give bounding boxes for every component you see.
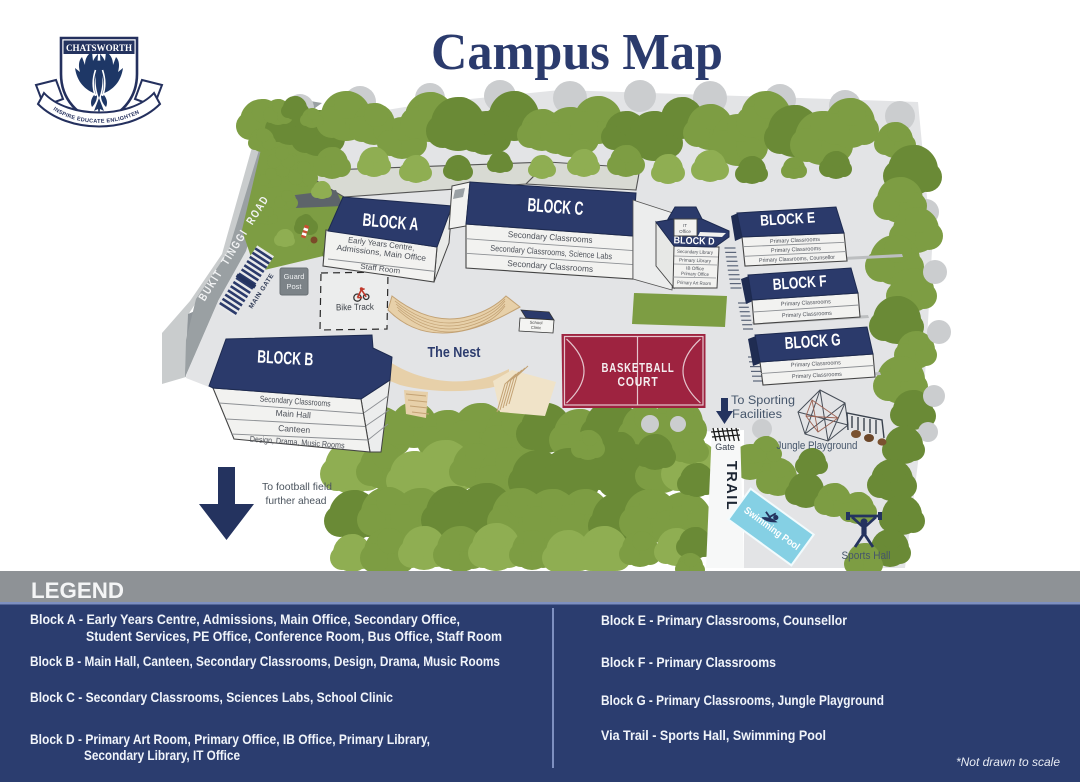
svg-text:Block E - Primary Classrooms,: Block E - Primary Classrooms, Counsellor <box>601 612 847 628</box>
svg-text:*Not drawn to scale: *Not drawn to scale <box>956 755 1060 769</box>
svg-text:Primary Library: Primary Library <box>679 257 712 264</box>
svg-text:Block A - Early Years Centre,: Block A - Early Years Centre, Admissions… <box>30 611 460 627</box>
svg-text:Primary Office: Primary Office <box>681 271 709 278</box>
svg-text:LEGEND: LEGEND <box>31 578 124 603</box>
svg-text:Bike Track: Bike Track <box>336 302 375 313</box>
svg-text:Campus Map: Campus Map <box>431 24 723 81</box>
svg-text:BLOCK B: BLOCK B <box>257 347 314 370</box>
svg-text:Post: Post <box>286 282 302 291</box>
svg-text:Block D - Primary Art Room, Pr: Block D - Primary Art Room, Primary Offi… <box>30 731 430 747</box>
svg-text:The Nest: The Nest <box>428 344 481 361</box>
svg-text:To football field: To football field <box>262 481 332 493</box>
svg-text:Student Services, PE Office, C: Student Services, PE Office, Conference … <box>86 628 502 644</box>
svg-text:Office: Office <box>679 229 691 234</box>
svg-text:Secondary Library, IT Office: Secondary Library, IT Office <box>84 747 240 763</box>
svg-text:BASKETBALL: BASKETBALL <box>602 361 675 375</box>
svg-text:further ahead: further ahead <box>266 495 327 507</box>
svg-text:BLOCK C: BLOCK C <box>527 195 584 220</box>
svg-text:Guard: Guard <box>284 272 305 281</box>
svg-text:Clinic: Clinic <box>531 325 541 330</box>
svg-text:Via Trail - Sports Hall, Swimm: Via Trail - Sports Hall, Swimming Pool <box>601 727 826 743</box>
svg-text:Sports Hall: Sports Hall <box>842 550 891 562</box>
svg-text:Primary Art Room: Primary Art Room <box>677 280 711 287</box>
svg-text:Facilities: Facilities <box>732 409 782 421</box>
svg-text:To Sporting: To Sporting <box>731 395 795 407</box>
svg-text:COURT: COURT <box>618 375 659 389</box>
svg-text:Block F - Primary Classrooms: Block F - Primary Classrooms <box>601 654 776 670</box>
svg-text:Block C - Secondary Classrooms: Block C - Secondary Classrooms, Sciences… <box>30 689 393 705</box>
svg-text:Jungle Playground: Jungle Playground <box>777 440 858 452</box>
svg-text:TRAIL: TRAIL <box>723 461 739 511</box>
svg-text:CHATSWORTH: CHATSWORTH <box>66 44 133 54</box>
svg-text:BLOCK G: BLOCK G <box>784 330 841 353</box>
svg-text:BLOCK D: BLOCK D <box>673 235 714 247</box>
svg-text:Block G - Primary Classrooms,: Block G - Primary Classrooms, Jungle Pla… <box>601 692 884 708</box>
svg-text:Block B - Main Hall, Canteen,: Block B - Main Hall, Canteen, Secondary … <box>30 653 500 669</box>
svg-text:Gate: Gate <box>715 442 735 452</box>
svg-text:IT: IT <box>683 223 687 228</box>
svg-text:BLOCK E: BLOCK E <box>760 209 816 229</box>
